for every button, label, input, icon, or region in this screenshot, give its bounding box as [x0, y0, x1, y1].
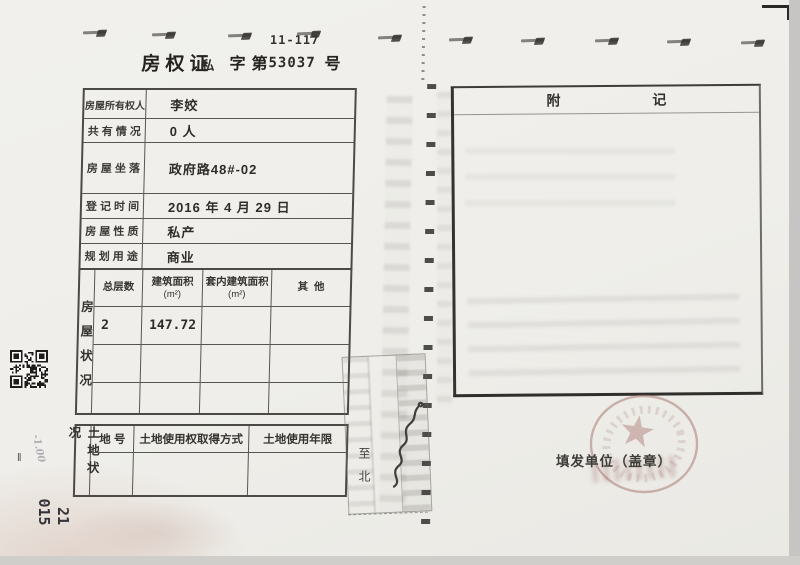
qr-code [10, 350, 48, 388]
empty-cell [201, 345, 271, 383]
empty-cell [92, 383, 141, 413]
field-label: 规 划 用 途 [80, 244, 143, 268]
owner-info-table: 房屋所有权人 李姣 共 有 情 况 0 人 房 屋 坐 落 政府路48#-02 … [78, 88, 356, 270]
col-header-built-area: 建筑面积(m²) [142, 270, 203, 307]
staple-mark-icon [595, 37, 618, 46]
scanner-background [789, 0, 800, 565]
floors-value: 2 [94, 307, 143, 345]
empty-cell [141, 345, 202, 383]
row-owner: 房屋所有权人 李姣 [84, 90, 355, 118]
field-value: 0 人 [146, 119, 355, 142]
empty-cell [271, 307, 350, 345]
house-status-table: 房屋状况 总层数 建筑面积(m²) 套内建筑面积(m²) 其 他 2 147.7… [75, 268, 353, 415]
handwritten-scribble [386, 399, 430, 493]
staple-mark-icon [521, 37, 544, 46]
field-value: 李姣 [146, 90, 355, 118]
empty-cell [133, 453, 249, 495]
serial-prefix-label: 字第 [229, 50, 274, 74]
margin-page-number: 015 [35, 490, 53, 534]
empty-cell [90, 453, 134, 495]
margin-page-number: 21 [54, 502, 72, 530]
corner-crop-mark [762, 5, 790, 20]
built-area-value: 147.72 [142, 307, 203, 345]
margin-tick-mark: ‖ [17, 452, 22, 464]
notes-title: 附 记 [454, 86, 759, 115]
issuer-label: 填发单位（盖章） [556, 450, 672, 470]
row-property-nature: 房 屋 性 质 私产 [81, 218, 352, 243]
field-label: 房屋所有权人 [84, 90, 147, 118]
empty-cell [140, 383, 201, 413]
seal-star-icon [619, 413, 656, 448]
col-header-floors: 总层数 [94, 270, 143, 307]
form-code: 11-117 [270, 33, 320, 47]
scanner-background [0, 556, 800, 565]
field-label: 登 记 时 间 [82, 194, 145, 218]
staple-mark-icon [667, 38, 690, 47]
certificate-category-char: 私 [201, 55, 214, 74]
col-header-acquisition-method: 土地使用权取得方式 [134, 426, 250, 453]
empty-cell [200, 383, 270, 413]
field-value: 2016 年 4 月 29 日 [144, 194, 353, 218]
land-status-side-label: 土地状况 [75, 426, 92, 495]
col-header-use-term: 土地使用年限 [249, 426, 347, 453]
row-planned-use: 规 划 用 途 商业 [80, 243, 351, 268]
row-registration-date: 登 记 时 间 2016 年 4 月 29 日 [82, 193, 353, 218]
empty-cell [202, 307, 272, 345]
empty-cell [93, 345, 142, 383]
field-value: 商业 [142, 244, 351, 268]
empty-cell [269, 383, 348, 413]
serial-number: 53037 [268, 55, 316, 71]
field-label: 房 屋 性 质 [81, 219, 144, 243]
notes-title-char: 记 [652, 90, 666, 110]
official-seal [578, 386, 712, 508]
staple-mark-icon [741, 39, 764, 48]
empty-cell [270, 345, 349, 383]
land-status-table: 土地状况 地 号 土地使用权取得方式 土地使用年限 [73, 424, 349, 497]
field-value: 政府路48#-02 [144, 143, 353, 193]
field-value: 私产 [143, 219, 352, 243]
empty-cell [248, 453, 346, 495]
staple-mark-icon [449, 36, 472, 45]
field-label: 房 屋 坐 落 [82, 143, 145, 193]
row-location: 房 屋 坐 落 政府路48#-02 [82, 142, 353, 193]
col-header-plot-number: 地 号 [91, 426, 135, 453]
col-header-other: 其 他 [271, 270, 350, 307]
scanned-certificate-page: 11-117 房权证 私 字第 53037 号 房屋所有权人 李姣 共 有 情 … [0, 0, 800, 565]
notes-box: 附 记 [451, 84, 763, 397]
serial-suffix-label: 号 [324, 50, 341, 74]
col-header-inner-area: 套内建筑面积(m²) [202, 270, 272, 307]
notes-title-char: 附 [546, 90, 560, 110]
row-co-ownership: 共 有 情 况 0 人 [84, 118, 355, 142]
field-label: 共 有 情 况 [84, 119, 147, 142]
